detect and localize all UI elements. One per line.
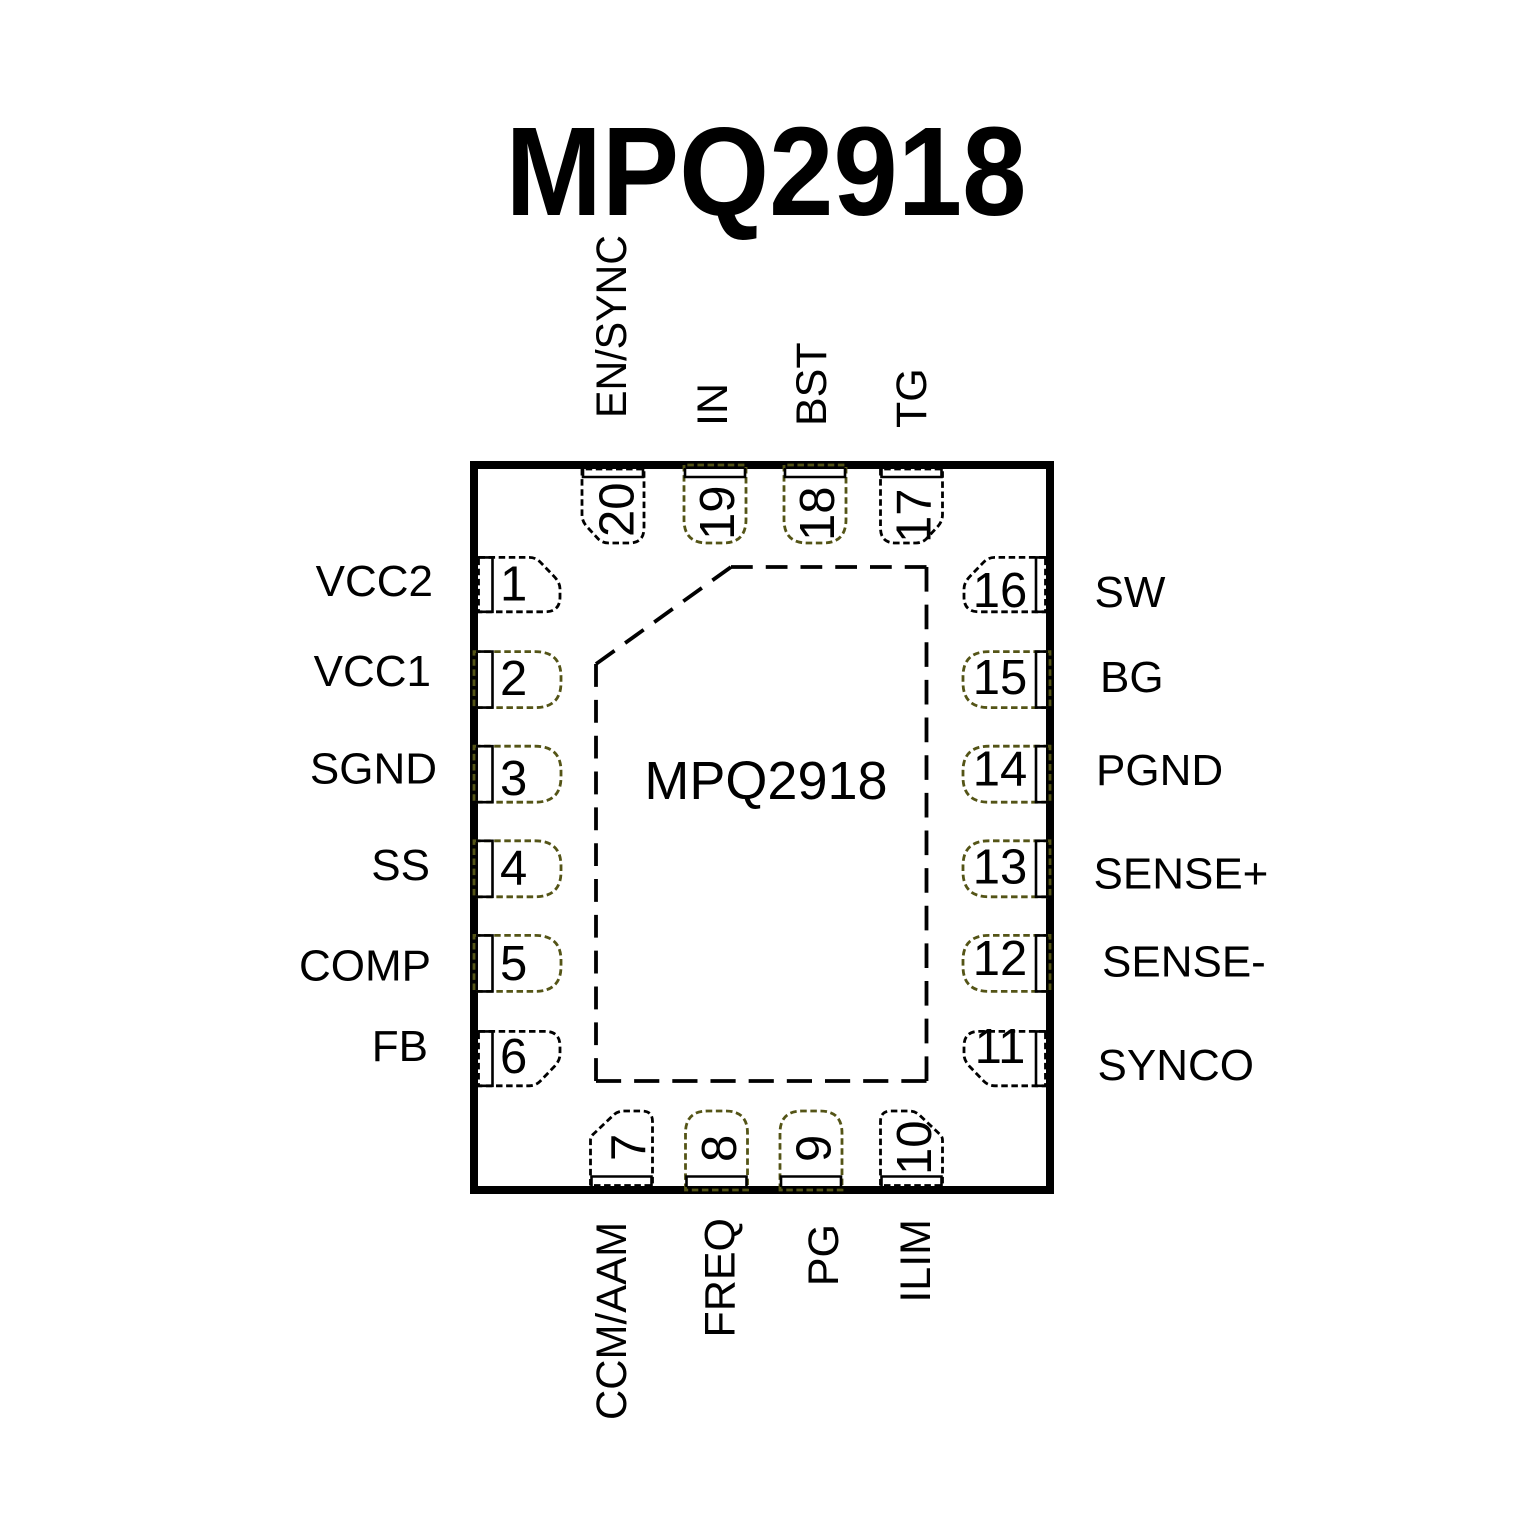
svg-text:11: 11 xyxy=(975,1020,1026,1074)
svg-text:MPQ2918: MPQ2918 xyxy=(506,101,1027,242)
svg-text:20: 20 xyxy=(591,482,645,537)
svg-text:SENSE+: SENSE+ xyxy=(1094,850,1269,899)
svg-text:6: 6 xyxy=(500,1030,527,1084)
svg-text:VCC1: VCC1 xyxy=(314,647,431,696)
svg-text:16: 16 xyxy=(973,564,1028,618)
svg-text:SW: SW xyxy=(1095,568,1166,617)
svg-text:CCM/AAM: CCM/AAM xyxy=(588,1222,636,1420)
svg-text:12: 12 xyxy=(973,932,1028,986)
svg-text:MPQ2918: MPQ2918 xyxy=(644,751,887,811)
svg-text:ILIM: ILIM xyxy=(892,1219,940,1303)
svg-text:8: 8 xyxy=(693,1135,747,1162)
svg-text:PG: PG xyxy=(800,1224,848,1286)
svg-text:1: 1 xyxy=(500,558,527,612)
svg-text:COMP: COMP xyxy=(299,942,431,991)
svg-text:TG: TG xyxy=(888,368,936,428)
svg-text:15: 15 xyxy=(973,651,1028,705)
svg-text:7: 7 xyxy=(602,1134,656,1161)
svg-text:FREQ: FREQ xyxy=(697,1218,745,1337)
svg-text:17: 17 xyxy=(888,488,942,543)
svg-text:14: 14 xyxy=(973,743,1028,797)
svg-text:19: 19 xyxy=(691,485,745,540)
svg-text:BG: BG xyxy=(1100,653,1164,702)
svg-text:3: 3 xyxy=(500,752,527,806)
svg-text:PGND: PGND xyxy=(1096,746,1223,795)
svg-text:2: 2 xyxy=(500,652,527,706)
svg-text:EN/SYNC: EN/SYNC xyxy=(588,235,636,418)
svg-text:FB: FB xyxy=(372,1022,428,1071)
svg-text:SGND: SGND xyxy=(310,745,437,794)
svg-text:SS: SS xyxy=(371,841,430,890)
svg-text:13: 13 xyxy=(973,841,1028,895)
svg-text:SYNCO: SYNCO xyxy=(1098,1041,1254,1090)
svg-text:9: 9 xyxy=(788,1135,842,1162)
svg-text:IN: IN xyxy=(689,383,737,426)
svg-text:5: 5 xyxy=(500,937,527,991)
svg-text:10: 10 xyxy=(888,1120,942,1175)
svg-text:BST: BST xyxy=(788,342,836,426)
svg-text:18: 18 xyxy=(791,486,845,541)
svg-text:4: 4 xyxy=(500,841,527,895)
svg-text:SENSE-: SENSE- xyxy=(1102,938,1266,987)
svg-text:VCC2: VCC2 xyxy=(316,557,433,606)
